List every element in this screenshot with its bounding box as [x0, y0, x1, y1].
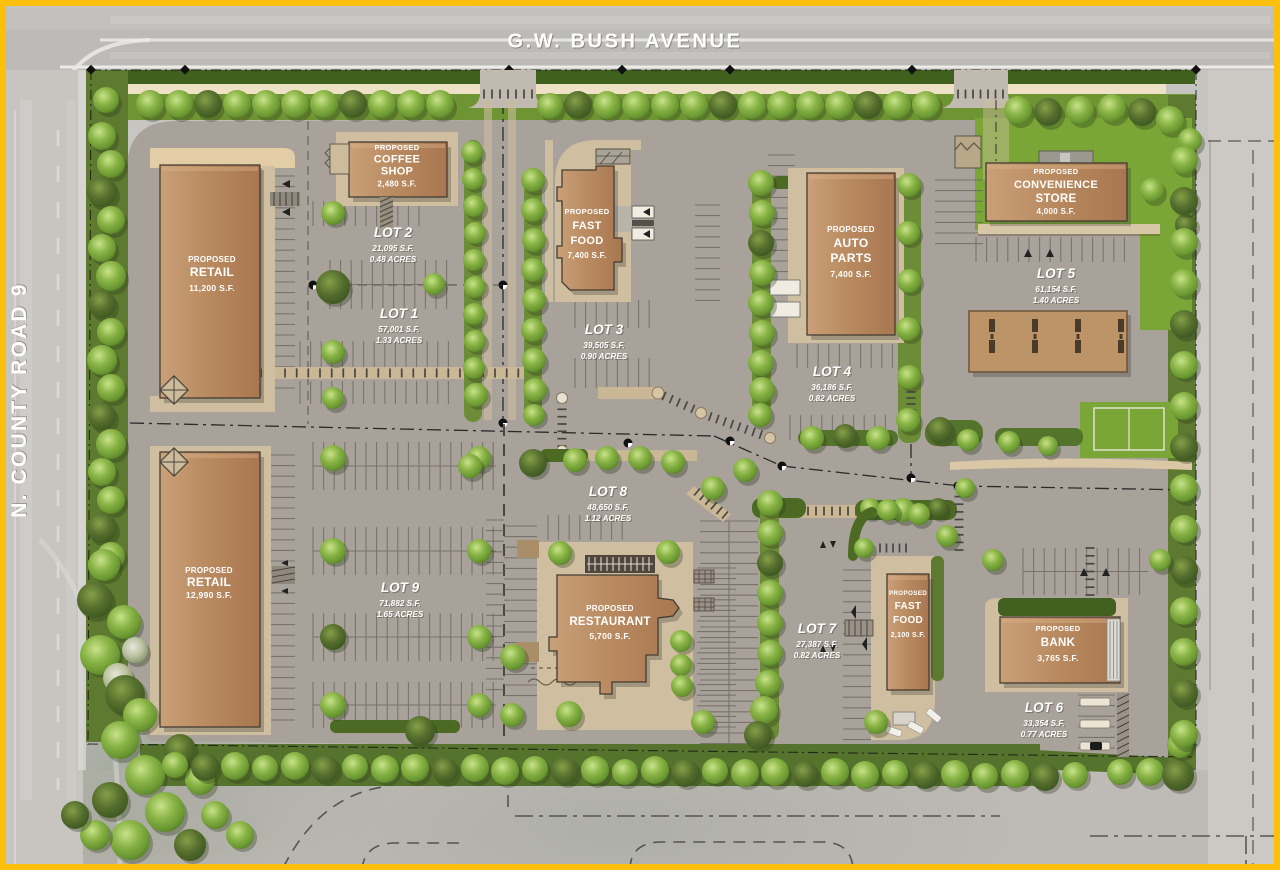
- svg-text:PROPOSED: PROPOSED: [375, 143, 420, 152]
- svg-text:CONVENIENCE: CONVENIENCE: [1014, 179, 1098, 191]
- svg-text:7,400 S.F.: 7,400 S.F.: [567, 251, 606, 260]
- svg-text:LOT 7: LOT 7: [798, 621, 838, 636]
- svg-text:PARTS: PARTS: [830, 251, 871, 265]
- svg-text:COFFEE: COFFEE: [374, 154, 420, 166]
- svg-text:PROPOSED: PROPOSED: [827, 225, 875, 234]
- svg-text:48,650 S.F.: 48,650 S.F.: [586, 503, 628, 512]
- svg-text:PROPOSED: PROPOSED: [185, 566, 233, 575]
- svg-text:PROPOSED: PROPOSED: [1036, 624, 1081, 633]
- svg-text:LOT 5: LOT 5: [1037, 266, 1076, 281]
- svg-text:G.W. BUSH AVENUE: G.W. BUSH AVENUE: [508, 31, 743, 53]
- svg-text:LOT 2: LOT 2: [374, 225, 413, 240]
- svg-text:FOOD: FOOD: [893, 615, 923, 626]
- svg-text:FAST: FAST: [572, 220, 601, 232]
- svg-text:1.40 ACRES: 1.40 ACRES: [1033, 296, 1080, 305]
- svg-text:0.48 ACRES: 0.48 ACRES: [370, 255, 417, 264]
- svg-text:21,095 S.F.: 21,095 S.F.: [371, 244, 413, 253]
- svg-text:FOOD: FOOD: [571, 235, 604, 247]
- svg-text:LOT 6: LOT 6: [1025, 700, 1064, 715]
- svg-text:BANK: BANK: [1041, 637, 1076, 649]
- svg-text:57,001 S.F.: 57,001 S.F.: [378, 325, 419, 334]
- svg-text:RESTAURANT: RESTAURANT: [569, 616, 650, 628]
- svg-text:12,990 S.F.: 12,990 S.F.: [186, 590, 232, 600]
- svg-text:PROPOSED: PROPOSED: [586, 604, 634, 613]
- svg-text:PROPOSED: PROPOSED: [889, 590, 927, 597]
- svg-text:PROPOSED: PROPOSED: [565, 207, 610, 216]
- svg-text:LOT 8: LOT 8: [589, 484, 628, 499]
- svg-text:2,100 S.F.: 2,100 S.F.: [891, 632, 926, 639]
- svg-text:1.65 ACRES: 1.65 ACRES: [377, 610, 424, 619]
- svg-text:7,400 S.F.: 7,400 S.F.: [830, 269, 871, 279]
- svg-text:27,387 S.F.: 27,387 S.F.: [795, 640, 837, 649]
- svg-text:36,186 S.F.: 36,186 S.F.: [811, 383, 852, 392]
- svg-text:11,200 S.F.: 11,200 S.F.: [189, 283, 235, 293]
- svg-text:61,154 S.F.: 61,154 S.F.: [1035, 285, 1076, 294]
- svg-text:STORE: STORE: [1036, 193, 1077, 205]
- svg-text:0.77 ACRES: 0.77 ACRES: [1021, 730, 1068, 739]
- svg-text:3,765 S.F.: 3,765 S.F.: [1037, 653, 1078, 663]
- svg-text:LOT 1: LOT 1: [380, 306, 418, 321]
- svg-text:LOT 9: LOT 9: [381, 580, 420, 595]
- svg-text:FAST: FAST: [895, 601, 922, 612]
- svg-text:PROPOSED: PROPOSED: [1034, 167, 1079, 176]
- svg-text:0.82 ACRES: 0.82 ACRES: [809, 394, 856, 403]
- svg-text:LOT 3: LOT 3: [585, 322, 624, 337]
- svg-text:5,700 S.F.: 5,700 S.F.: [589, 631, 630, 641]
- svg-text:1.33 ACRES: 1.33 ACRES: [376, 336, 423, 345]
- svg-text:N. COUNTY ROAD 9: N. COUNTY ROAD 9: [8, 282, 31, 518]
- svg-text:2,480 S.F.: 2,480 S.F.: [377, 180, 416, 189]
- svg-text:RETAIL: RETAIL: [190, 265, 234, 279]
- svg-text:1.12 ACRES: 1.12 ACRES: [585, 514, 632, 523]
- svg-text:33,354 S.F.: 33,354 S.F.: [1023, 719, 1064, 728]
- svg-text:39,505 S.F.: 39,505 S.F.: [583, 341, 624, 350]
- svg-text:0.90 ACRES: 0.90 ACRES: [581, 352, 628, 361]
- svg-text:PROPOSED: PROPOSED: [188, 255, 236, 264]
- svg-text:RETAIL: RETAIL: [187, 575, 231, 589]
- svg-text:0.82 ACRES: 0.82 ACRES: [794, 651, 841, 660]
- svg-text:4,000 S.F.: 4,000 S.F.: [1036, 207, 1075, 216]
- svg-text:SHOP: SHOP: [381, 166, 413, 178]
- svg-text:LOT 4: LOT 4: [813, 364, 852, 379]
- svg-text:AUTO: AUTO: [834, 236, 869, 250]
- svg-text:71,882 S.F.: 71,882 S.F.: [379, 599, 420, 608]
